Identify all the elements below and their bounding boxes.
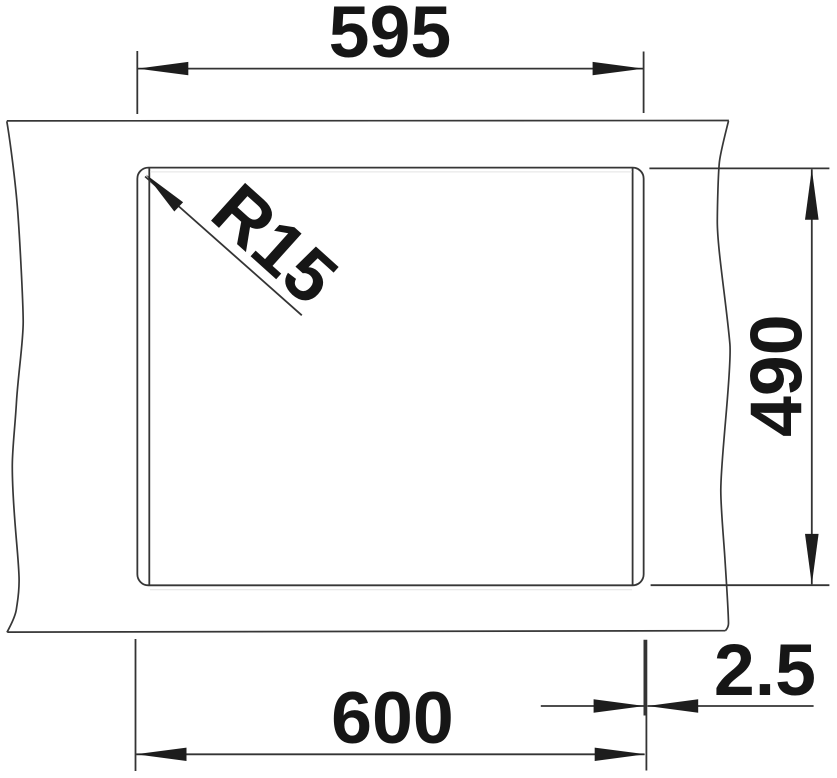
svg-text:2.5: 2.5 bbox=[714, 628, 816, 711]
svg-text:595: 595 bbox=[329, 0, 452, 73]
svg-text:490: 490 bbox=[735, 314, 818, 437]
svg-text:600: 600 bbox=[331, 676, 454, 759]
